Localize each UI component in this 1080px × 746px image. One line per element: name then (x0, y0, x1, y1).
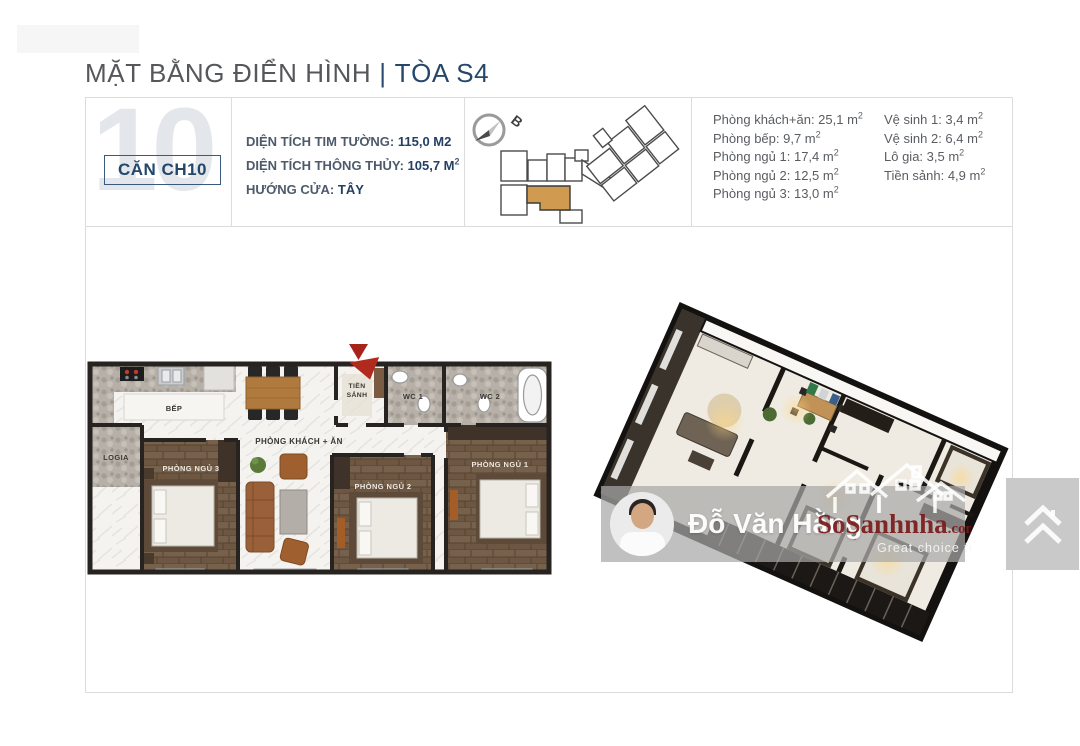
title-tower: TÒA S4 (395, 58, 490, 88)
room-area-item: Lô gia: 3,5 m2 (884, 149, 985, 164)
faded-watermark-block (17, 25, 139, 53)
spec-net-area: DIỆN TÍCH THÔNG THỦY: 105,7 M2 (246, 158, 460, 173)
brand-logo: SoSanhnha.com Great choice for you (809, 455, 971, 565)
room-area-item: Phòng khách+ăn: 25,1 m2 (713, 112, 883, 127)
room-area-item: Vệ sinh 2: 6,4 m2 (884, 131, 985, 146)
room-area-item: Tiền sảnh: 4,9 m2 (884, 168, 985, 183)
building-outline-diagram: B (465, 98, 692, 226)
room-area-item: Vệ sinh 1: 3,4 m2 (884, 112, 985, 127)
dining-table (246, 366, 300, 420)
unit-label: CĂN CH10 (104, 155, 221, 185)
title-separator: | (379, 58, 386, 88)
agent-avatar (610, 492, 674, 556)
compass-icon: B (474, 112, 526, 145)
label-kitchen: BẾP (166, 403, 183, 413)
label-living: PHÒNG KHÁCH + ĂN (255, 437, 343, 446)
svg-text:B: B (508, 112, 526, 131)
chevron-house-icon (1020, 500, 1066, 550)
label-wc2: WC 2 (480, 392, 500, 401)
label-bedroom1: PHÒNG NGỦ 1 (472, 460, 529, 469)
brand-houses-icon (827, 465, 965, 513)
info-strip: 10 CĂN CH10 DIỆN TÍCH TIM TƯỜNG: 115,0 M… (85, 97, 1013, 227)
highlighted-unit (527, 186, 570, 210)
floorplan-poster: MẶT BẰNG ĐIỂN HÌNH|TÒA S4 10 CĂN CH10 DI… (0, 0, 1080, 746)
label-wc1: WC 1 (403, 392, 423, 401)
room-area-item: Phòng ngủ 1: 17,4 m2 (713, 149, 883, 164)
unit-specs: DIỆN TÍCH TIM TƯỜNG: 115,0 M2 DIỆN TÍCH … (231, 98, 464, 226)
room-area-item: Phòng ngủ 3: 13,0 m2 (713, 186, 883, 201)
room-areas: Phòng khách+ăn: 25,1 m2 Phòng bếp: 9,7 m… (691, 98, 1012, 226)
unit-card: 10 CĂN CH10 (86, 98, 231, 226)
brand-name: SoSanhnha.com (817, 509, 971, 539)
unit-number-watermark: 10 (92, 86, 211, 216)
room-area-item: Phòng ngủ 2: 12,5 m2 (713, 168, 883, 183)
spec-door-direction: HƯỚNG CỬA: TÂY (246, 182, 460, 197)
floorplan-2d: BẾP LOGIA PHÒNG KHÁCH + ĂN TIỀN SẢNH WC … (86, 340, 564, 590)
label-bedroom3: PHÒNG NGỦ 3 (163, 464, 220, 473)
room-areas-list-left: Phòng khách+ăn: 25,1 m2 Phòng bếp: 9,7 m… (713, 112, 883, 205)
locator-map: B (464, 98, 691, 226)
brand-tagline: Great choice for you (877, 541, 971, 555)
corner-brand-badge (1006, 478, 1079, 570)
label-hall-2: SẢNH (347, 390, 368, 399)
label-bedroom2: PHÒNG NGỦ 2 (355, 482, 412, 491)
content-box: BẾP LOGIA PHÒNG KHÁCH + ĂN TIỀN SẢNH WC … (85, 227, 1013, 693)
room-area-item: Phòng bếp: 9,7 m2 (713, 131, 883, 146)
spec-gross-area: DIỆN TÍCH TIM TƯỜNG: 115,0 M2 (246, 134, 460, 149)
room-areas-list-right: Vệ sinh 1: 3,4 m2 Vệ sinh 2: 6,4 m2 Lô g… (884, 112, 985, 205)
label-logia: LOGIA (103, 453, 129, 462)
building-footprint (501, 99, 679, 223)
